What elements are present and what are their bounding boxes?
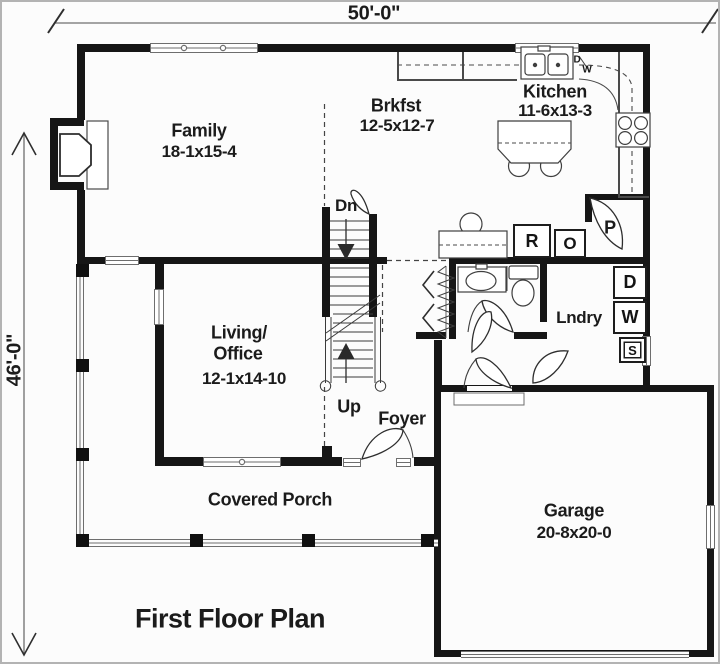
washer-label: W <box>622 307 639 328</box>
bathroom-fixtures <box>458 264 538 306</box>
dishwasher-label-w: W <box>582 65 591 76</box>
laundry-sink-box: S <box>619 337 646 363</box>
room-label-foyer: Foyer <box>378 409 426 430</box>
laundry-sink-label: S <box>628 343 637 358</box>
oven-label: O <box>563 234 576 254</box>
refrigerator-box: R <box>513 224 551 258</box>
room-label-living-2: Office <box>213 344 262 365</box>
room-label-kitchen: Kitchen <box>523 82 587 103</box>
room-label-garage: Garage <box>544 501 604 522</box>
plan-title: First Floor Plan <box>135 604 325 635</box>
planning-desk <box>439 213 507 258</box>
cooktop <box>616 113 650 147</box>
staircase <box>320 219 385 391</box>
closet-bifold-chevrons <box>423 271 434 331</box>
dimension-left-label: 46'-0" <box>4 334 27 386</box>
refrigerator-label: R <box>526 231 539 252</box>
dryer-box: D <box>613 266 647 299</box>
window-pane-marks <box>181 45 244 464</box>
dimension-top-label: 50'-0" <box>348 3 400 26</box>
room-label-family: Family <box>171 121 226 142</box>
kitchen-sink <box>521 46 573 79</box>
room-size-brkfst: 12-5x12-7 <box>360 116 435 136</box>
room-label-brkfst: Brkfst <box>371 96 421 117</box>
garage-entry-door <box>454 358 524 405</box>
kitchen-island <box>498 121 571 177</box>
stairs-up-label: Up <box>337 397 360 418</box>
pantry-label: P <box>604 218 616 239</box>
closet-hangers <box>438 266 454 338</box>
room-label-living-1: Living/ <box>211 323 267 344</box>
stairs-down-label: Dn <box>335 196 357 216</box>
room-size-living: 12-1x14-10 <box>202 369 286 389</box>
room-size-kitchen: 11-6x13-3 <box>518 101 592 121</box>
dryer-label: D <box>624 272 637 293</box>
floor-plan-canvas: R O D W S <box>0 0 720 664</box>
oven-box: O <box>554 229 586 258</box>
room-size-garage: 20-8x20-0 <box>537 523 612 543</box>
washer-box: W <box>613 301 647 334</box>
room-label-porch: Covered Porch <box>208 490 332 511</box>
fireplace <box>50 118 108 190</box>
room-size-family: 18-1x15-4 <box>162 142 237 162</box>
room-label-laundry: Lndry <box>556 308 602 328</box>
front-door <box>362 429 413 459</box>
dishwasher-label-d: D <box>574 55 581 66</box>
